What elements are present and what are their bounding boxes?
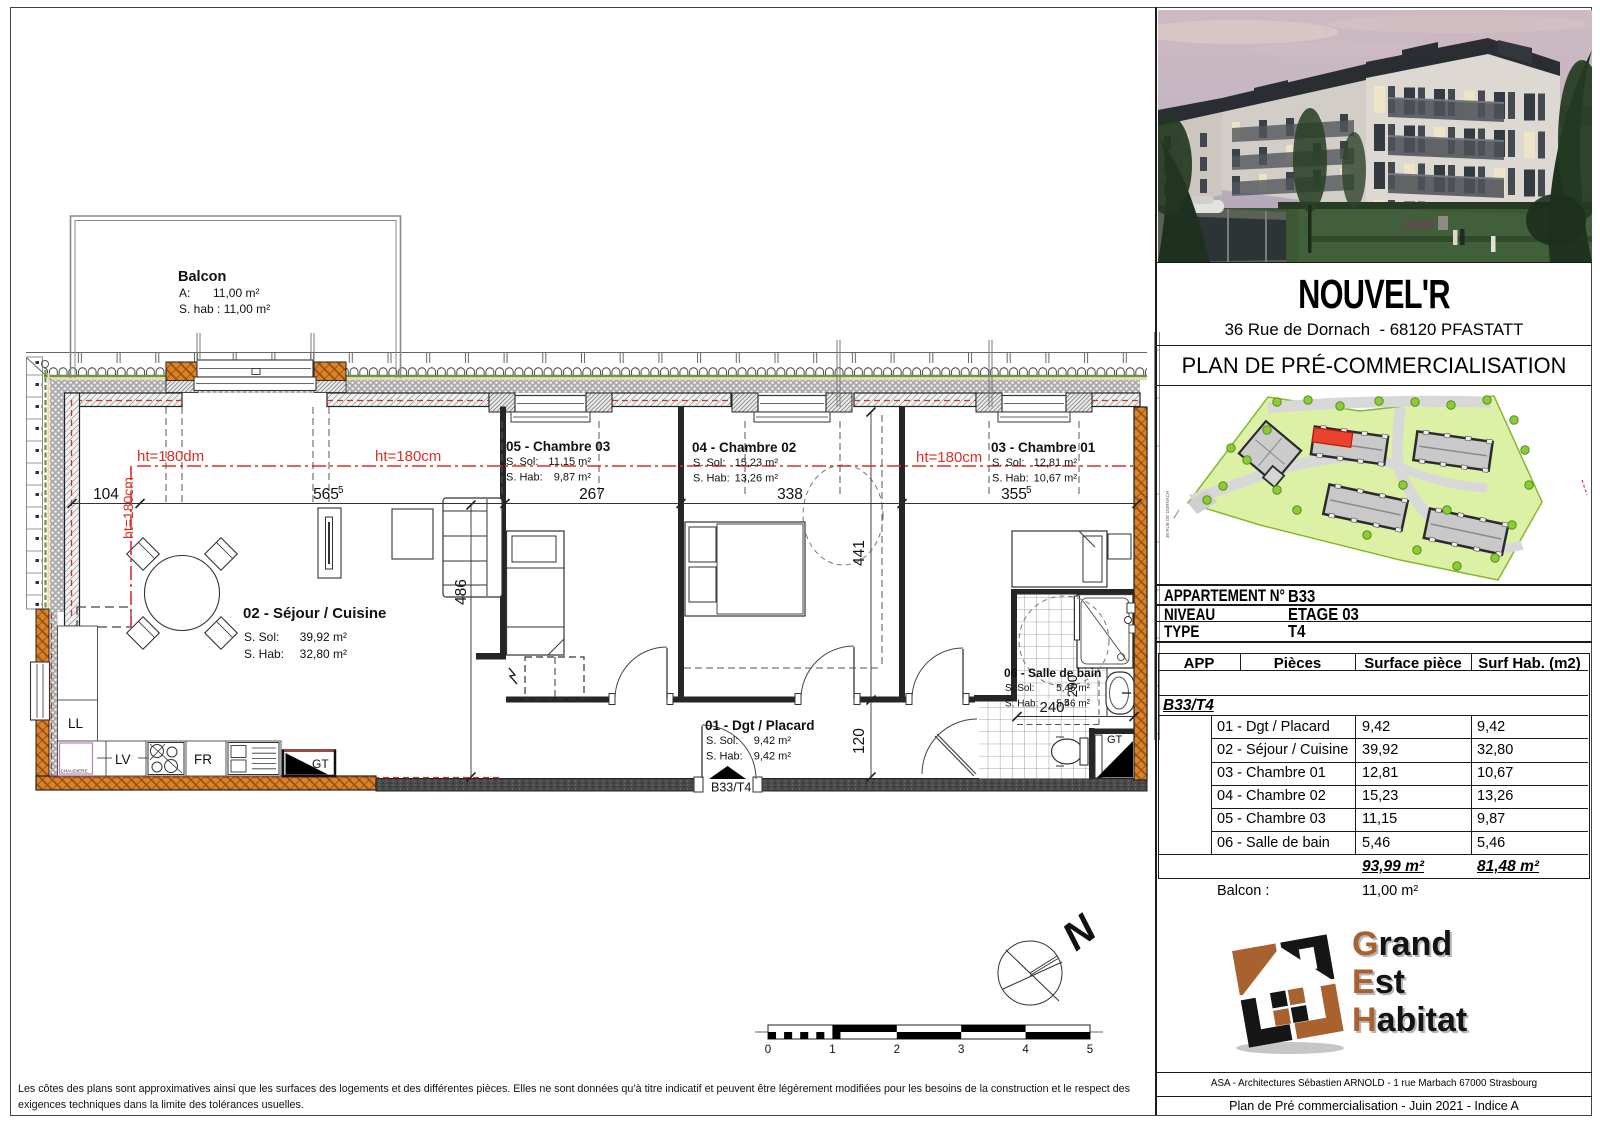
- svg-text:Grand: Grand: [1352, 925, 1452, 963]
- svg-text:GT: GT: [312, 757, 329, 771]
- svg-text:11,00 m²: 11,00 m²: [213, 286, 259, 300]
- svg-text:S. Hab:: S. Hab:: [1005, 699, 1038, 710]
- svg-text:03 - Chambre 01: 03 - Chambre 01: [991, 440, 1096, 455]
- svg-text:Est: Est: [1352, 963, 1405, 1001]
- svg-text:ht=180dm: ht=180dm: [137, 448, 204, 465]
- svg-text:S. Sol:: S. Sol:: [244, 630, 279, 644]
- svg-text:ht=180cm: ht=180cm: [916, 449, 982, 466]
- svg-text:S. Sol:: S. Sol:: [506, 456, 538, 468]
- svg-text:02 - Séjour / Cuisine: 02 - Séjour / Cuisine: [243, 605, 386, 622]
- svg-text:S. Sol:: S. Sol:: [706, 735, 738, 747]
- svg-text:FR: FR: [194, 752, 212, 767]
- svg-text:S. Sol:: S. Sol:: [992, 457, 1024, 469]
- svg-text:441: 441: [851, 540, 868, 566]
- svg-text:355: 355: [1001, 486, 1027, 503]
- svg-text:S. Hab:: S. Hab:: [244, 647, 284, 661]
- svg-text:B33/T4: B33/T4: [711, 781, 751, 795]
- svg-text:Habitat: Habitat: [1352, 1001, 1467, 1039]
- svg-text:9,42 m²: 9,42 m²: [754, 751, 792, 763]
- svg-text:11,15 m²: 11,15 m²: [548, 456, 591, 468]
- svg-text:LV: LV: [115, 752, 131, 767]
- svg-text:32,80 m²: 32,80 m²: [300, 647, 347, 661]
- svg-text:267: 267: [579, 486, 605, 503]
- svg-text:Les côtes des plans sont appro: Les côtes des plans sont approximatives …: [18, 1083, 1130, 1095]
- svg-text:1: 1: [829, 1044, 835, 1056]
- svg-text:9,87 m²: 9,87 m²: [554, 472, 592, 484]
- svg-text:ht=180cm: ht=180cm: [375, 448, 441, 465]
- svg-text:0: 0: [765, 1044, 771, 1056]
- svg-text:10,67 m²: 10,67 m²: [1034, 473, 1078, 485]
- svg-text:CHAUDIERE: CHAUDIERE: [61, 769, 88, 774]
- svg-text:120: 120: [851, 728, 868, 754]
- svg-text:N: N: [1054, 906, 1105, 959]
- svg-text:S. Hab:: S. Hab:: [506, 472, 543, 484]
- svg-text:486: 486: [453, 579, 470, 605]
- svg-text:04 - Chambre 02: 04 - Chambre 02: [692, 440, 796, 455]
- svg-text:104: 104: [93, 486, 119, 503]
- svg-text:S. hab : 11,00 m²: S. hab : 11,00 m²: [179, 302, 270, 316]
- svg-text:S. Hab:: S. Hab:: [706, 751, 743, 763]
- svg-text:5,46 m²: 5,46 m²: [1056, 683, 1091, 694]
- svg-text:9,42 m²: 9,42 m²: [754, 735, 792, 747]
- svg-text:S. Sol:: S. Sol:: [693, 457, 725, 469]
- svg-text:05 - Chambre 03: 05 - Chambre 03: [506, 439, 611, 454]
- svg-text:LL: LL: [68, 716, 84, 731]
- svg-text:565: 565: [313, 486, 339, 503]
- svg-text:5: 5: [1087, 1044, 1093, 1056]
- svg-text:5,46 m²: 5,46 m²: [1056, 699, 1091, 710]
- svg-text:12,81 m²: 12,81 m²: [1034, 457, 1078, 469]
- svg-text:S. Sol:: S. Sol:: [1005, 683, 1034, 694]
- svg-text:Balcon: Balcon: [178, 269, 226, 285]
- svg-text:338: 338: [777, 486, 803, 503]
- svg-text:2: 2: [894, 1044, 900, 1056]
- svg-text:3: 3: [958, 1044, 964, 1056]
- svg-text:15,23 m²: 15,23 m²: [735, 457, 779, 469]
- svg-text:5: 5: [1026, 485, 1032, 496]
- svg-text:06 - Salle de bain: 06 - Salle de bain: [1004, 666, 1101, 680]
- svg-text:exigences techniques dans la l: exigences techniques dans la limite des …: [18, 1099, 304, 1111]
- svg-text:39,92 m²: 39,92 m²: [300, 630, 347, 644]
- svg-text:01 - Dgt / Placard: 01 - Dgt / Placard: [705, 718, 815, 733]
- svg-text:S. Hab:: S. Hab:: [693, 473, 730, 485]
- svg-text:4: 4: [1022, 1044, 1029, 1056]
- svg-text:A:: A:: [179, 286, 190, 300]
- svg-text:13,26 m²: 13,26 m²: [735, 473, 779, 485]
- svg-text:36 RUE DE DORNACH: 36 RUE DE DORNACH: [1165, 491, 1170, 538]
- svg-text:S. Hab:: S. Hab:: [992, 473, 1029, 485]
- svg-text:ht=180cm: ht=180cm: [120, 477, 136, 539]
- svg-text:GT: GT: [1107, 734, 1123, 746]
- svg-text:5: 5: [338, 485, 344, 496]
